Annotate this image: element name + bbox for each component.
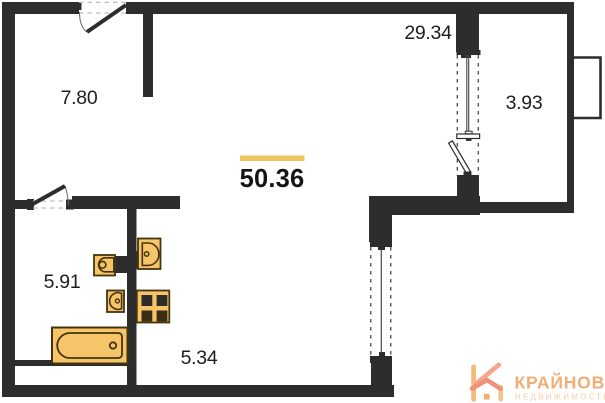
- svg-text:5.91: 5.91: [44, 271, 81, 293]
- svg-text:7.80: 7.80: [61, 87, 98, 109]
- svg-text:5.34: 5.34: [181, 347, 218, 369]
- svg-text:3.93: 3.93: [506, 92, 543, 114]
- svg-text:29.34: 29.34: [404, 22, 452, 44]
- svg-text:КРАЙНОВ: КРАЙНОВ: [515, 372, 605, 393]
- svg-text:50.36: 50.36: [240, 165, 305, 193]
- svg-text:НЕДВИЖИМОСТЬ: НЕДВИЖИМОСТЬ: [515, 393, 605, 402]
